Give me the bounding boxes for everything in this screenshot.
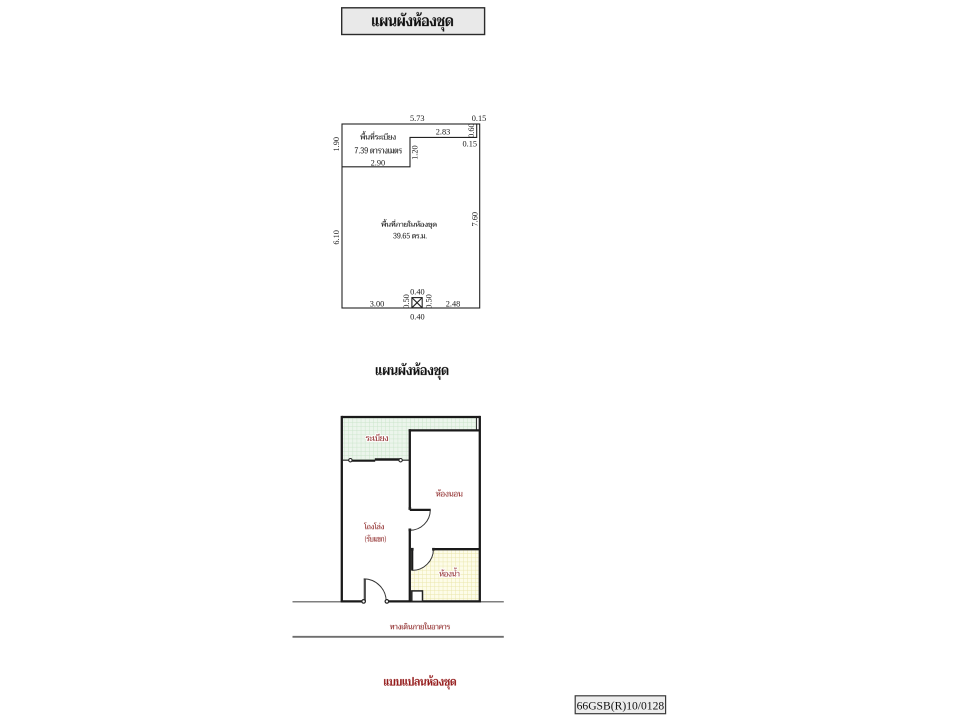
svg-text:3.00: 3.00 (370, 299, 385, 308)
svg-text:2.48: 2.48 (446, 299, 461, 308)
svg-text:6.10: 6.10 (332, 230, 341, 245)
svg-text:0.50: 0.50 (402, 294, 411, 309)
svg-text:0.15: 0.15 (472, 114, 487, 123)
svg-text:7.60: 7.60 (471, 212, 480, 227)
svg-text:0.40: 0.40 (410, 312, 425, 321)
svg-text:0.15: 0.15 (463, 140, 478, 149)
svg-text:1.20: 1.20 (410, 145, 419, 160)
svg-text:2.83: 2.83 (436, 127, 451, 136)
svg-text:1.90: 1.90 (332, 137, 341, 152)
svg-text:0.50: 0.50 (425, 294, 434, 309)
svg-text:0.60: 0.60 (467, 123, 476, 138)
svg-text:2.90: 2.90 (371, 159, 386, 168)
svg-text:0.40: 0.40 (410, 288, 425, 297)
svg-text:5.73: 5.73 (410, 114, 425, 123)
svg-text:66GSB(R)10/0128: 66GSB(R)10/0128 (577, 700, 665, 713)
